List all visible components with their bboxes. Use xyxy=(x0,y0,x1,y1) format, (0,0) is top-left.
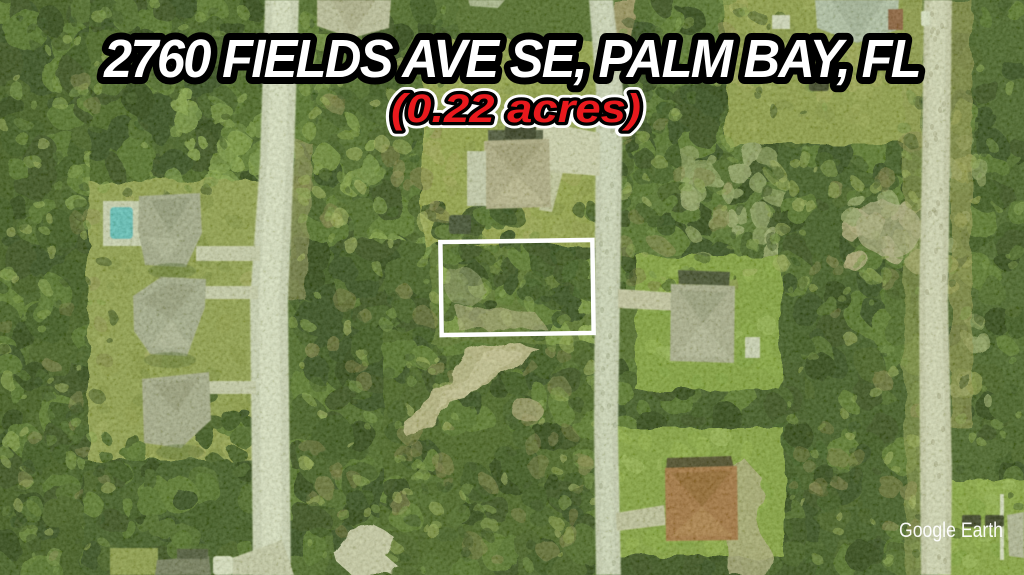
svg-text:2760 FIELDS AVE SE, PALM BAY,: 2760 FIELDS AVE SE, PALM BAY, FL xyxy=(103,29,920,89)
svg-text:(0.22 acres): (0.22 acres) xyxy=(391,87,641,131)
svg-text:Google Earth: Google Earth xyxy=(899,519,1003,542)
